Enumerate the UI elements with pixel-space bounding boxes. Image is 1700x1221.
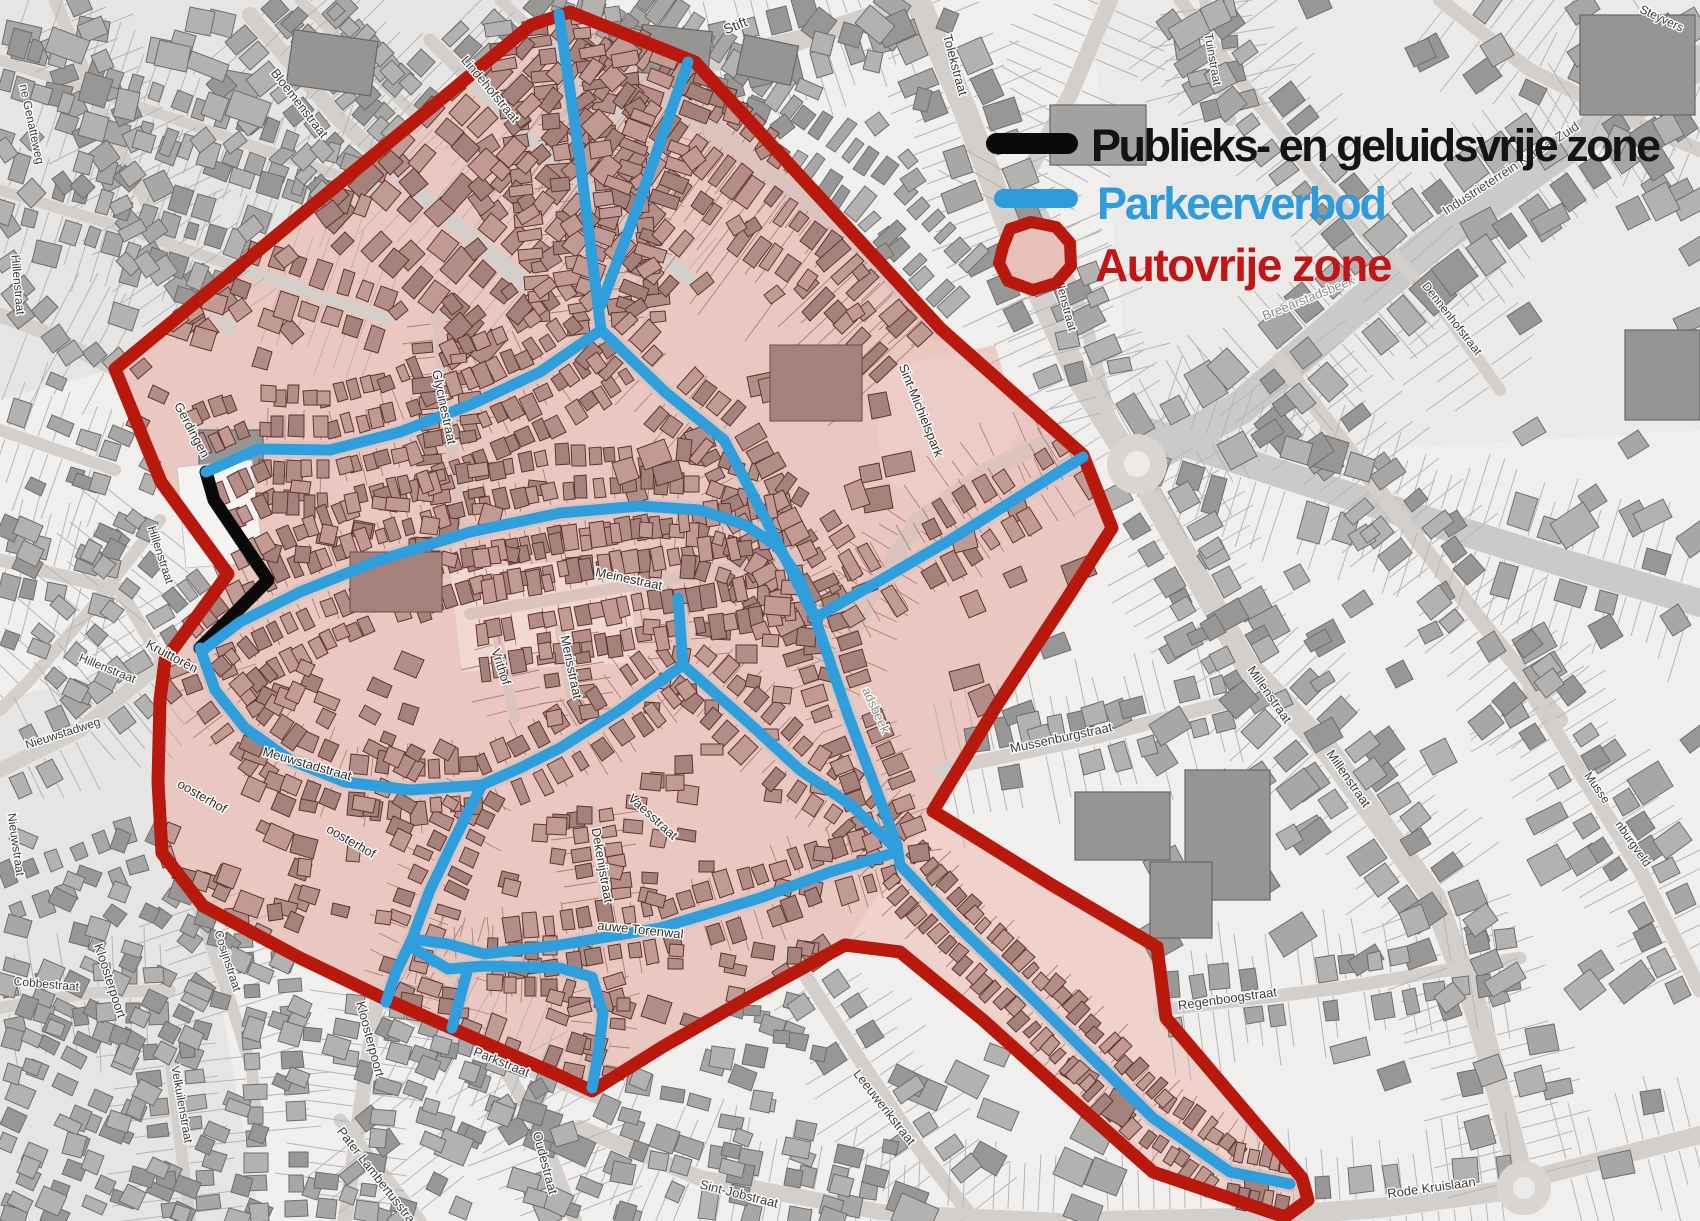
svg-text:Parkeerverbod: Parkeerverbod [1097, 178, 1385, 229]
svg-text:Publieks- en geluidsvrije zone: Publieks- en geluidsvrije zone [1091, 120, 1660, 171]
svg-text:Autovrije zone: Autovrije zone [1095, 239, 1392, 291]
